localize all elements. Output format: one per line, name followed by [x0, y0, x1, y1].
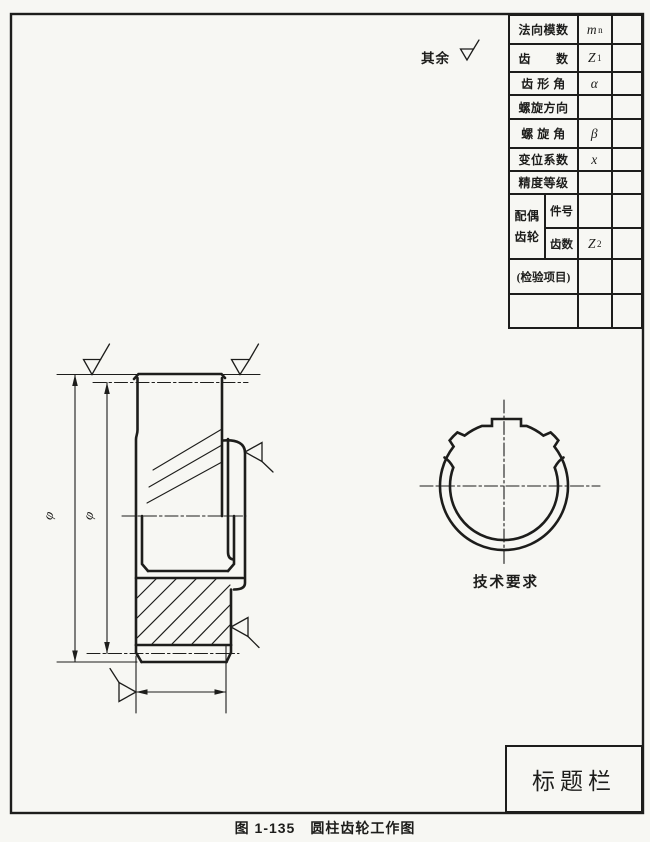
surface-roughness-icon — [231, 618, 259, 648]
helix-direction-lines — [147, 429, 222, 503]
param-symbol — [579, 260, 613, 295]
dimension-arrows — [72, 375, 226, 695]
param-symbol: Z2 — [579, 229, 613, 260]
mate-gear-part-no-label: 件号 — [546, 195, 579, 229]
surface-roughness-icon — [461, 40, 480, 60]
param-label: 螺旋方向 — [510, 96, 579, 120]
mate-gear-label: 配偶 齿轮 — [510, 195, 546, 260]
gear-profile — [134, 374, 245, 662]
side-view-centerlines — [420, 400, 600, 566]
param-symbol: Z1 — [579, 45, 613, 73]
technical-requirements-label: 技术要求 — [466, 571, 546, 592]
param-label: 法向模数 — [510, 16, 579, 45]
param-symbol: β — [579, 120, 613, 149]
param-value — [613, 260, 643, 295]
rest-surfaces-note: 其余 — [421, 47, 450, 67]
param-value — [613, 73, 643, 96]
side-end-view — [420, 400, 600, 566]
param-symbol — [579, 195, 613, 229]
param-value — [613, 172, 643, 195]
param-value — [613, 96, 643, 120]
surface-roughness-icon — [245, 443, 273, 473]
param-label: 精度等级 — [510, 172, 579, 195]
param-symbol — [579, 172, 613, 195]
param-value — [613, 45, 643, 73]
param-symbol: α — [579, 73, 613, 96]
title-block-label: 标题栏 — [532, 762, 616, 796]
pitch-and-center-lines — [87, 383, 248, 654]
param-label: 齿 数 — [510, 45, 579, 73]
surface-roughness-icon — [232, 344, 259, 375]
param-value — [613, 16, 643, 45]
surface-roughness-icon — [84, 344, 110, 375]
param-label: 齿 形 角 — [510, 73, 579, 96]
inspection-items-label: (检验项目) — [510, 260, 579, 295]
title-block: 标题栏 — [505, 745, 643, 813]
empty-row-label — [510, 295, 579, 327]
param-label: 变位系数 — [510, 149, 579, 172]
param-symbol: x — [579, 149, 613, 172]
surface-roughness-icon — [110, 669, 136, 702]
param-label: 螺 旋 角 — [510, 120, 579, 149]
param-symbol: mn — [579, 16, 613, 45]
param-symbol — [579, 96, 613, 120]
param-value — [613, 120, 643, 149]
drawing-sheet: 法向模数 mn 齿 数 Z1 齿 形 角 α 螺旋方向 螺 旋 角 β 变位系数… — [0, 0, 650, 842]
section-hatching — [137, 578, 230, 644]
gear-parameter-table: 法向模数 mn 齿 数 Z1 齿 形 角 α 螺旋方向 螺 旋 角 β 变位系数… — [508, 14, 643, 329]
param-value — [613, 149, 643, 172]
empty-row-symbol — [579, 295, 613, 327]
param-value — [613, 229, 643, 260]
figure-caption: 图 1-135 圆柱齿轮工作图 — [0, 818, 650, 838]
front-section-view — [57, 344, 273, 713]
mate-gear-teeth-label: 齿数 — [546, 229, 579, 260]
param-value — [613, 195, 643, 229]
empty-row-value — [613, 295, 643, 327]
